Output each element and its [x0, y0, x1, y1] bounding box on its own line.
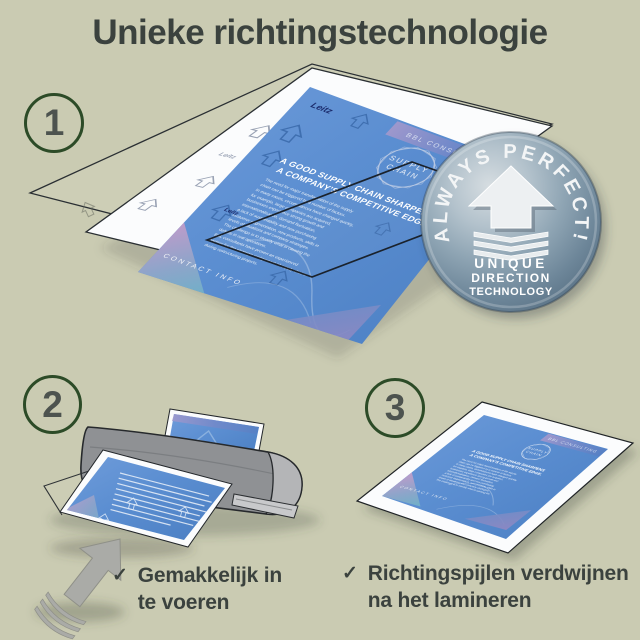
step-2-marker: 2	[23, 375, 82, 434]
step-3-marker: 3	[365, 378, 425, 438]
step-3-number: 3	[385, 387, 406, 429]
illustration: Leitz Leitz BBL CONSULTING Leitz	[0, 0, 640, 640]
page-title: Unieke richtingstechnologie	[0, 13, 640, 53]
note-text: Gemakkelijk in te voeren	[138, 562, 282, 616]
checkmark-icon: ✓	[342, 560, 358, 614]
step-2-number: 2	[42, 384, 63, 426]
badge-line-technology: TECHNOLOGY	[469, 286, 553, 298]
badge-line-direction: DIRECTION	[471, 271, 551, 285]
checkmark-icon: ✓	[112, 562, 128, 616]
note-text: Richtingspijlen verdwijnen na het lamine…	[368, 560, 629, 614]
note-easy-feeding: ✓ Gemakkelijk in te voeren	[112, 562, 282, 616]
step-1-number: 1	[44, 102, 65, 144]
step-1-marker: 1	[24, 93, 84, 153]
poster: Leitz Leitz BBL CONSULTING Leitz	[0, 0, 640, 640]
always-perfect-badge: ALWAYS PERFECT! UNIQUE DIRECTION TECHNOL…	[421, 132, 606, 319]
badge-line-unique: UNIQUE	[474, 256, 548, 271]
note-arrows-disappear: ✓ Richtingspijlen verdwijnen na het lami…	[342, 560, 629, 614]
